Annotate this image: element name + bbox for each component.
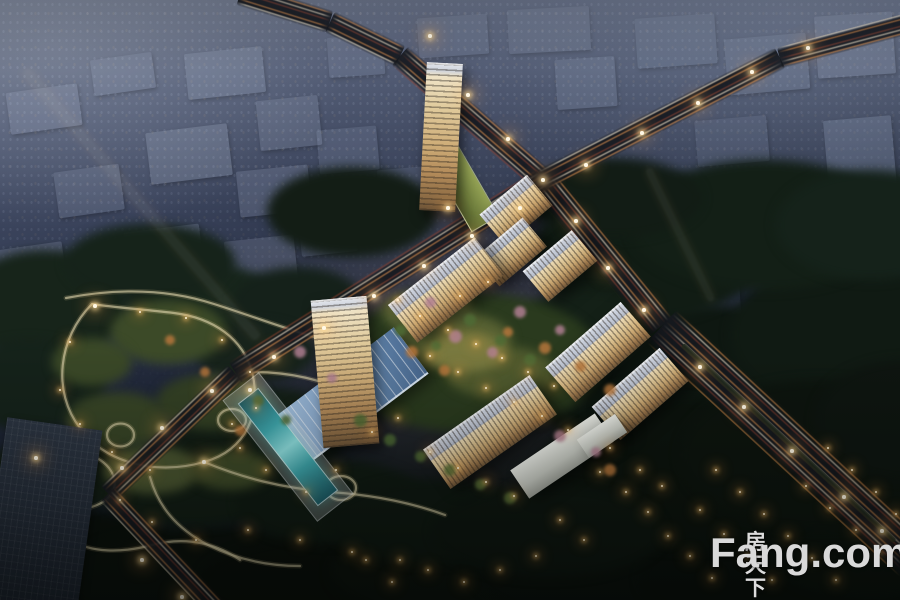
courtyard-tree [281,415,291,425]
garden-light [231,423,233,425]
garden-light [475,343,477,345]
street-lamp-light [842,495,846,499]
garden-light [559,519,561,521]
city-block [236,164,312,217]
city-block [316,125,380,174]
city-block [614,175,684,222]
garden-light [711,577,713,579]
garden-light [397,299,399,301]
courtyard-tree [384,434,396,446]
street-lamp-light [518,206,522,210]
vegetation-patch [0,510,190,600]
garden-light [501,357,503,359]
park-path [218,409,246,431]
garden-light [391,581,393,583]
garden-light [699,509,701,511]
street-lamp-light [180,595,184,599]
highway-segment [538,47,786,190]
street-lamp-light [696,101,700,105]
vegetation-patch [535,400,835,550]
vegetation-patch [52,338,132,386]
garden-light [249,371,251,373]
highway-segment [100,364,244,502]
street-lamp-light [806,46,810,50]
garden-light [625,491,627,493]
courtyard-tree [444,464,456,476]
vegetation-patch [0,250,130,360]
garden-light [827,447,829,449]
vegetation-patch [530,190,760,320]
garden-light [119,499,121,501]
garden-light [111,451,113,453]
vegetation-patch [237,460,427,544]
courtyard-tree [200,367,210,377]
garden-light [459,295,461,297]
vegetation-patch [383,290,473,334]
night-aerial-render: 房天下 Fang.com [0,0,900,600]
courtyard-tree [395,325,406,336]
street-lamp-light [120,466,124,470]
traffic-light-trails [777,11,900,68]
residential-tower-thin [311,296,380,448]
glass-roof-building [275,327,428,462]
residential-tower [592,348,689,440]
garden-light [399,559,401,561]
park-path [62,304,255,468]
garden-light [487,281,489,283]
traffic-light-trails [538,47,786,190]
vegetation-patch [125,262,275,338]
garden-light [851,469,853,471]
city-block [377,166,434,205]
street-lamp-light [248,388,252,392]
garden-light [149,469,151,471]
vegetation-layer [0,0,900,600]
highway-segment [391,46,551,190]
city-block [694,115,770,167]
garden-light [499,569,501,571]
garden-light [805,485,807,487]
garden-light [763,513,765,515]
garden-light [397,417,399,419]
watermark-english-text: Fang.com [710,531,900,575]
buildings-layer [0,0,900,600]
park-path [66,291,344,346]
courtyard-tree [294,346,306,358]
vegetation-patch [60,528,360,600]
garden-light [457,467,459,469]
residential-tower [475,218,547,287]
courtyard-tree [539,342,551,354]
garden-light [583,539,585,541]
garden-light [661,485,663,487]
vegetation-patch [156,374,268,430]
garden-light [513,495,515,497]
garden-light [221,339,223,341]
residential-tower [388,237,504,343]
park-path [252,372,352,394]
street-lamp-light [272,355,276,359]
vegetation-patch [97,437,287,527]
city-block [795,294,860,342]
clubhouse-roof [510,413,614,498]
residential-tower [545,302,651,402]
vegetation-patch [0,340,105,430]
courtyard-tree [575,361,586,372]
traffic-light-trails [531,171,673,336]
green-roof-podium [429,142,500,232]
park-path [326,476,356,500]
vegetation-patch [327,480,537,564]
street-lamp-light [428,34,432,38]
traffic-light-trails [325,11,405,67]
street-lamp-light [202,460,206,464]
highway-segment [228,169,550,384]
city-block [675,274,742,318]
garden-light [835,579,837,581]
courtyard-tree [495,335,506,346]
courtyard-tree [554,430,566,442]
city-block [145,123,233,185]
courtyard-tree [406,346,418,358]
street-lamp-light [34,456,38,460]
vegetation-patch [233,267,363,337]
traffic-light-trails [228,169,550,384]
park-path [150,477,300,566]
vignette-overlay [0,0,900,600]
street-lamp-light [466,93,470,97]
street-lamp-light [470,234,474,238]
courtyard-tree [431,341,441,351]
garden-light [59,389,61,391]
courtyard-tree [449,330,462,343]
traffic-light-trails [391,46,551,190]
vegetation-patch [333,292,603,432]
street-lamp-light [93,304,97,308]
park-path [150,477,300,566]
garden-light [639,469,641,471]
vegetation-patch [110,300,226,364]
garden-light [265,469,267,471]
courtyard-tree [555,325,565,335]
street-lamp-light [642,308,646,312]
atmospheric-haze [0,0,900,600]
swimming-pool [238,388,339,506]
courtyard-tree [327,373,337,383]
garden-light [715,469,717,471]
street-lamp-light [584,163,588,167]
traffic-light-trails [236,0,333,33]
highway-segment [777,11,900,68]
park-path [218,409,246,431]
garden-light [829,507,831,509]
vegetation-patch [177,387,347,477]
street-lamp-light [750,70,754,74]
courtyard-tree [475,479,486,490]
vegetation-patch [0,434,137,510]
highway-segment [531,171,673,336]
city-block [90,52,156,96]
vegetation-patch [104,446,200,494]
park-path [66,291,344,346]
park-path [204,462,445,515]
street-lamp-light [210,389,214,393]
city-block [823,115,897,193]
courtyard-tree [604,384,616,396]
garden-light [351,551,353,553]
city-block [327,34,386,78]
garden-light [609,447,611,449]
garden-light [305,491,307,493]
park-path [326,476,356,500]
courtyard-trees-layer [0,0,900,600]
garden-light [447,329,449,331]
city-block [507,6,591,54]
vegetation-patch [392,312,512,368]
vegetation-patch [680,380,900,530]
park-path [252,372,352,394]
street-lamp-light [640,131,644,135]
street-lamp-light [322,326,326,330]
city-block [814,11,896,78]
vegetation-patch [200,534,520,600]
city-block [634,13,717,68]
garden-light [463,581,465,583]
city-block [734,195,799,240]
street-lamp-light [541,178,545,182]
traffic-light-trails [100,486,233,600]
city-block [724,33,811,96]
street-segment [645,166,715,301]
vegetation-patch [267,167,437,257]
highway-median [681,343,897,543]
garden-light [365,559,367,561]
courtyard-tree [504,492,516,504]
park-path [107,424,134,447]
garden-light [247,529,249,531]
garden-light [541,415,543,417]
city-block [184,46,266,100]
pool-deck [222,372,353,522]
courtyard-tree [439,365,450,376]
courtyard-tree [503,327,513,337]
vegetation-patch [730,260,900,410]
garden-light [185,317,187,319]
garden-light [429,355,431,357]
courtyard-tree [487,347,498,358]
garden-light [567,429,569,431]
garden-light [513,401,515,403]
courtyard-tree [165,335,175,345]
street-lamp-light [574,219,578,223]
street-lamp-light [160,426,164,430]
highway-segment [100,486,233,600]
garden-light [371,431,373,433]
garden-light [553,385,555,387]
city-block [256,95,323,151]
garden-light [195,539,197,541]
vegetation-patch [330,517,670,600]
street-lamp-light [422,264,426,268]
vegetation-patch [190,450,270,490]
street-segment [22,67,262,341]
garden-light [335,469,337,471]
vegetation-patch [540,305,860,475]
city-block [845,224,900,272]
residential-tower-thin [419,62,463,212]
clubhouse-roof [577,414,627,458]
garden-light [667,535,669,537]
city-window-lights [0,0,900,600]
city-block [53,164,125,219]
street-lamp-light [606,266,610,270]
city-block [554,56,617,110]
residential-tower [523,230,598,302]
vegetation-patch [815,360,900,480]
courtyard-tree [464,314,476,326]
city-block [417,14,490,59]
garden-light [647,511,649,513]
garden-light [429,451,431,453]
park-path [204,462,445,515]
vegetation-patch [630,160,900,290]
night-lights-layer [0,0,900,600]
street-lamp-light [446,206,450,210]
garden-light [875,491,877,493]
vegetation-patch [445,346,555,398]
courtyard-tree [425,297,436,308]
garden-light [69,341,71,343]
garden-light [739,491,741,493]
street-lamp-light [372,294,376,298]
garden-light [535,555,537,557]
garden-light [689,555,691,557]
park-path [62,304,255,468]
highway-segment [236,0,333,33]
park-path-network [0,0,900,600]
vegetation-patch [65,224,235,300]
road-network [0,0,900,600]
garden-light [299,539,301,541]
city-block [5,83,82,135]
street-lamp-light [790,449,794,453]
street-lamp-light [698,365,702,369]
traffic-light-trails [100,364,244,502]
courtyard-tree [354,414,367,427]
garden-light [239,447,241,449]
garden-light [527,371,529,373]
courtyard-tree [415,451,426,462]
courtyard-tree [235,425,246,436]
residential-tower [479,175,552,245]
highway-segment [325,11,405,67]
courtyard-tree [253,395,264,406]
night-sky-city-haze [0,0,900,600]
garden-light [485,481,487,483]
background-city-blocks [0,0,900,600]
garden-light [895,513,897,515]
dark-highrise [0,417,102,600]
courtyard-tree [524,354,536,366]
courtyard-tree [591,447,601,457]
vegetation-patch [66,392,170,448]
garden-light [255,407,257,409]
vegetation-patch [775,170,900,280]
city-block [123,224,205,283]
vegetation-patch [515,290,655,370]
garden-light [139,311,141,313]
courtyard-tree [604,464,616,476]
garden-light [79,423,81,425]
city-block [224,234,298,287]
garden-light [485,387,487,389]
garden-light [427,569,429,571]
street-lamp-light [506,137,510,141]
garden-light [457,371,459,373]
city-block [298,215,357,257]
residential-tower [423,375,557,489]
park-path [40,450,240,560]
garden-light [419,315,421,317]
city-block [0,241,70,310]
garden-light [599,471,601,473]
street-lamp-light [140,558,144,562]
park-path [107,424,134,447]
street-lamp-light [742,405,746,409]
park-path [40,450,240,560]
courtyard-tree [514,306,526,318]
vegetation-patch [433,486,663,578]
garden-light [151,521,153,523]
vegetation-patch [426,332,506,372]
vegetation-patch [522,158,702,238]
vegetation-patch [195,322,315,382]
